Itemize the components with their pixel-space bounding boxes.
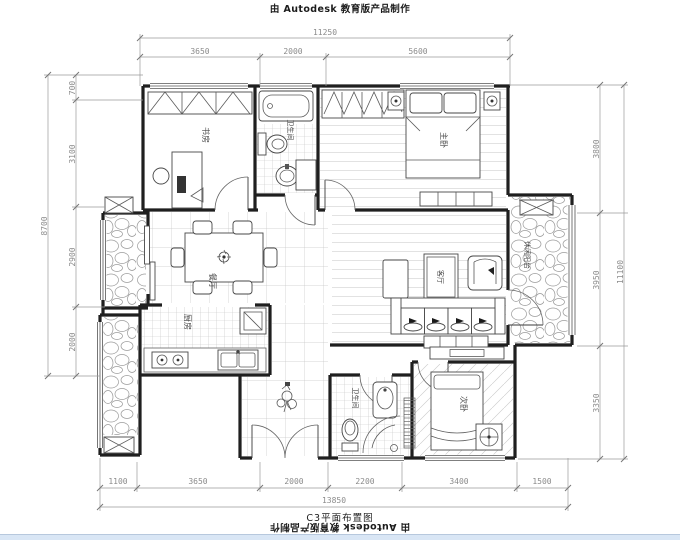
dim-left-seg3: 2900 xyxy=(68,247,77,266)
balcony-pebble-floor xyxy=(510,197,570,343)
fridge xyxy=(240,308,266,334)
garden-lower-window xyxy=(97,322,104,448)
sink-2 xyxy=(373,382,397,418)
dim-bottom-seg5: 3400 xyxy=(449,477,468,486)
dim-right-seg1: 3800 xyxy=(592,139,601,158)
toilet-1 xyxy=(258,133,287,155)
dim-right-seg3: 3350 xyxy=(592,393,601,412)
toilet-2 xyxy=(342,419,358,451)
garden-upper-window xyxy=(100,220,107,300)
leisure-balcony-label: 休闲阳台 xyxy=(523,241,532,269)
sofa xyxy=(391,298,505,334)
stove xyxy=(152,352,188,368)
dim-top-seg1: 3650 xyxy=(190,47,209,56)
balcony-window xyxy=(568,205,577,335)
living-label: 客厅 xyxy=(436,270,445,284)
kitchen-sink xyxy=(218,350,258,370)
autodesk-watermark-bottom: 由 Autodesk 教育版产品制作 xyxy=(0,521,680,535)
living-furniture xyxy=(383,254,505,348)
master-tv-cabinet xyxy=(420,192,492,206)
hall-tile-floor xyxy=(272,305,328,456)
dim-bottom-total: 13850 xyxy=(322,496,346,505)
entry-tile-floor xyxy=(242,377,272,456)
dim-bottom-seg6: 1500 xyxy=(532,477,551,486)
kitchen-label: 厨房 xyxy=(183,314,193,330)
living-tv-cabinet xyxy=(424,336,488,348)
dim-left-total: 8700 xyxy=(40,216,49,235)
study-monitor xyxy=(177,176,186,193)
bath2-window xyxy=(338,455,404,462)
study-label: 书房 xyxy=(201,127,211,143)
radiator xyxy=(476,424,502,450)
study-door xyxy=(215,177,248,210)
dim-bottom-seg3: 2000 xyxy=(284,477,303,486)
garden-lower-pebbles xyxy=(102,317,138,435)
nightstand-left xyxy=(388,92,404,110)
bedroom2-bed xyxy=(431,372,483,450)
dim-bottom-seg1: 1100 xyxy=(108,477,127,486)
dim-right-seg2: 3950 xyxy=(592,270,601,289)
bedroom2-window xyxy=(425,455,505,462)
dim-top-seg2: 2000 xyxy=(283,47,302,56)
bathroom1-label: 卫生间 xyxy=(286,120,295,141)
nightstand-right xyxy=(484,92,500,110)
dim-left-seg1: 700 xyxy=(68,81,77,96)
window-bottom-edge xyxy=(0,534,680,540)
column-garden-bottom xyxy=(104,437,134,453)
pipe-shaft xyxy=(404,398,415,448)
living-rug xyxy=(383,260,408,298)
dim-top-seg3: 5600 xyxy=(408,47,427,56)
shower-1 xyxy=(296,160,316,190)
dim-right-total: 11100 xyxy=(616,260,625,284)
bedroom2-cabinet xyxy=(430,347,504,359)
dimension-bottom: 1100 3650 2000 2200 3400 1500 13850 xyxy=(97,458,571,511)
bath1-window xyxy=(260,83,312,90)
floorplan-drawing: 书房 卫生间 主卧 餐厅 厨房 客厅 休闲阳台 卫生间 次卧 11250 365… xyxy=(0,0,680,540)
master-window xyxy=(400,83,494,90)
armchair xyxy=(468,256,502,290)
master-bedroom-label: 主卧 xyxy=(439,132,449,148)
dim-left-seg4: 2000 xyxy=(68,332,77,351)
column-balcony-top xyxy=(520,200,553,215)
bathroom2-label: 卫生间 xyxy=(351,388,360,409)
dim-bottom-seg2: 3650 xyxy=(188,477,207,486)
dimension-top: 11250 3650 2000 5600 xyxy=(137,28,513,86)
study-furniture xyxy=(148,92,252,208)
dim-left-seg2: 3100 xyxy=(68,144,77,163)
study-wardrobe xyxy=(148,92,252,114)
second-bedroom-label: 次卧 xyxy=(459,396,469,412)
study-window xyxy=(150,83,248,90)
study-chair xyxy=(153,168,169,184)
garden-upper-pebbles xyxy=(105,215,146,306)
column-garden-top xyxy=(105,197,133,213)
dim-top-total: 11250 xyxy=(313,28,337,37)
dining-label: 餐厅 xyxy=(208,273,217,289)
floorplan-screenshot: 由 Autodesk 教育版产品制作 xyxy=(0,0,680,540)
dim-bottom-seg4: 2200 xyxy=(355,477,374,486)
